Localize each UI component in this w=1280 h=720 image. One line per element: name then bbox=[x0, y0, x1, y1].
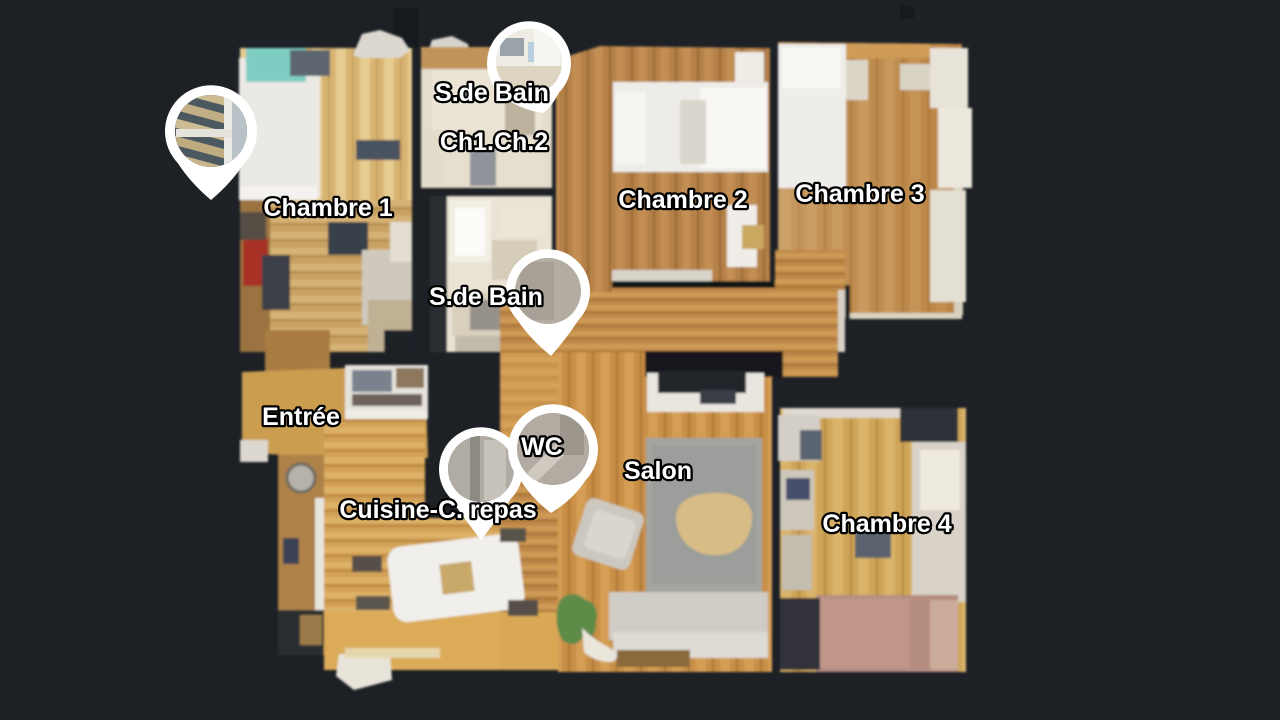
svg-text:Chambre 1: Chambre 1 bbox=[263, 194, 392, 222]
svg-text:Chambre 2: Chambre 2 bbox=[618, 186, 747, 214]
svg-text:WC: WC bbox=[521, 433, 563, 461]
svg-text:Chambre 4: Chambre 4 bbox=[822, 510, 951, 538]
svg-text:Cuisine-C. repas: Cuisine-C. repas bbox=[339, 496, 536, 524]
svg-text:S.de Bain: S.de Bain bbox=[435, 79, 549, 107]
svg-text:Salon: Salon bbox=[624, 457, 692, 485]
svg-text:S.de Bain: S.de Bain bbox=[429, 283, 543, 311]
svg-text:Ch1.Ch.2: Ch1.Ch.2 bbox=[440, 128, 548, 156]
svg-text:Entrée: Entrée bbox=[262, 403, 340, 431]
svg-text:Chambre 3: Chambre 3 bbox=[795, 180, 924, 208]
